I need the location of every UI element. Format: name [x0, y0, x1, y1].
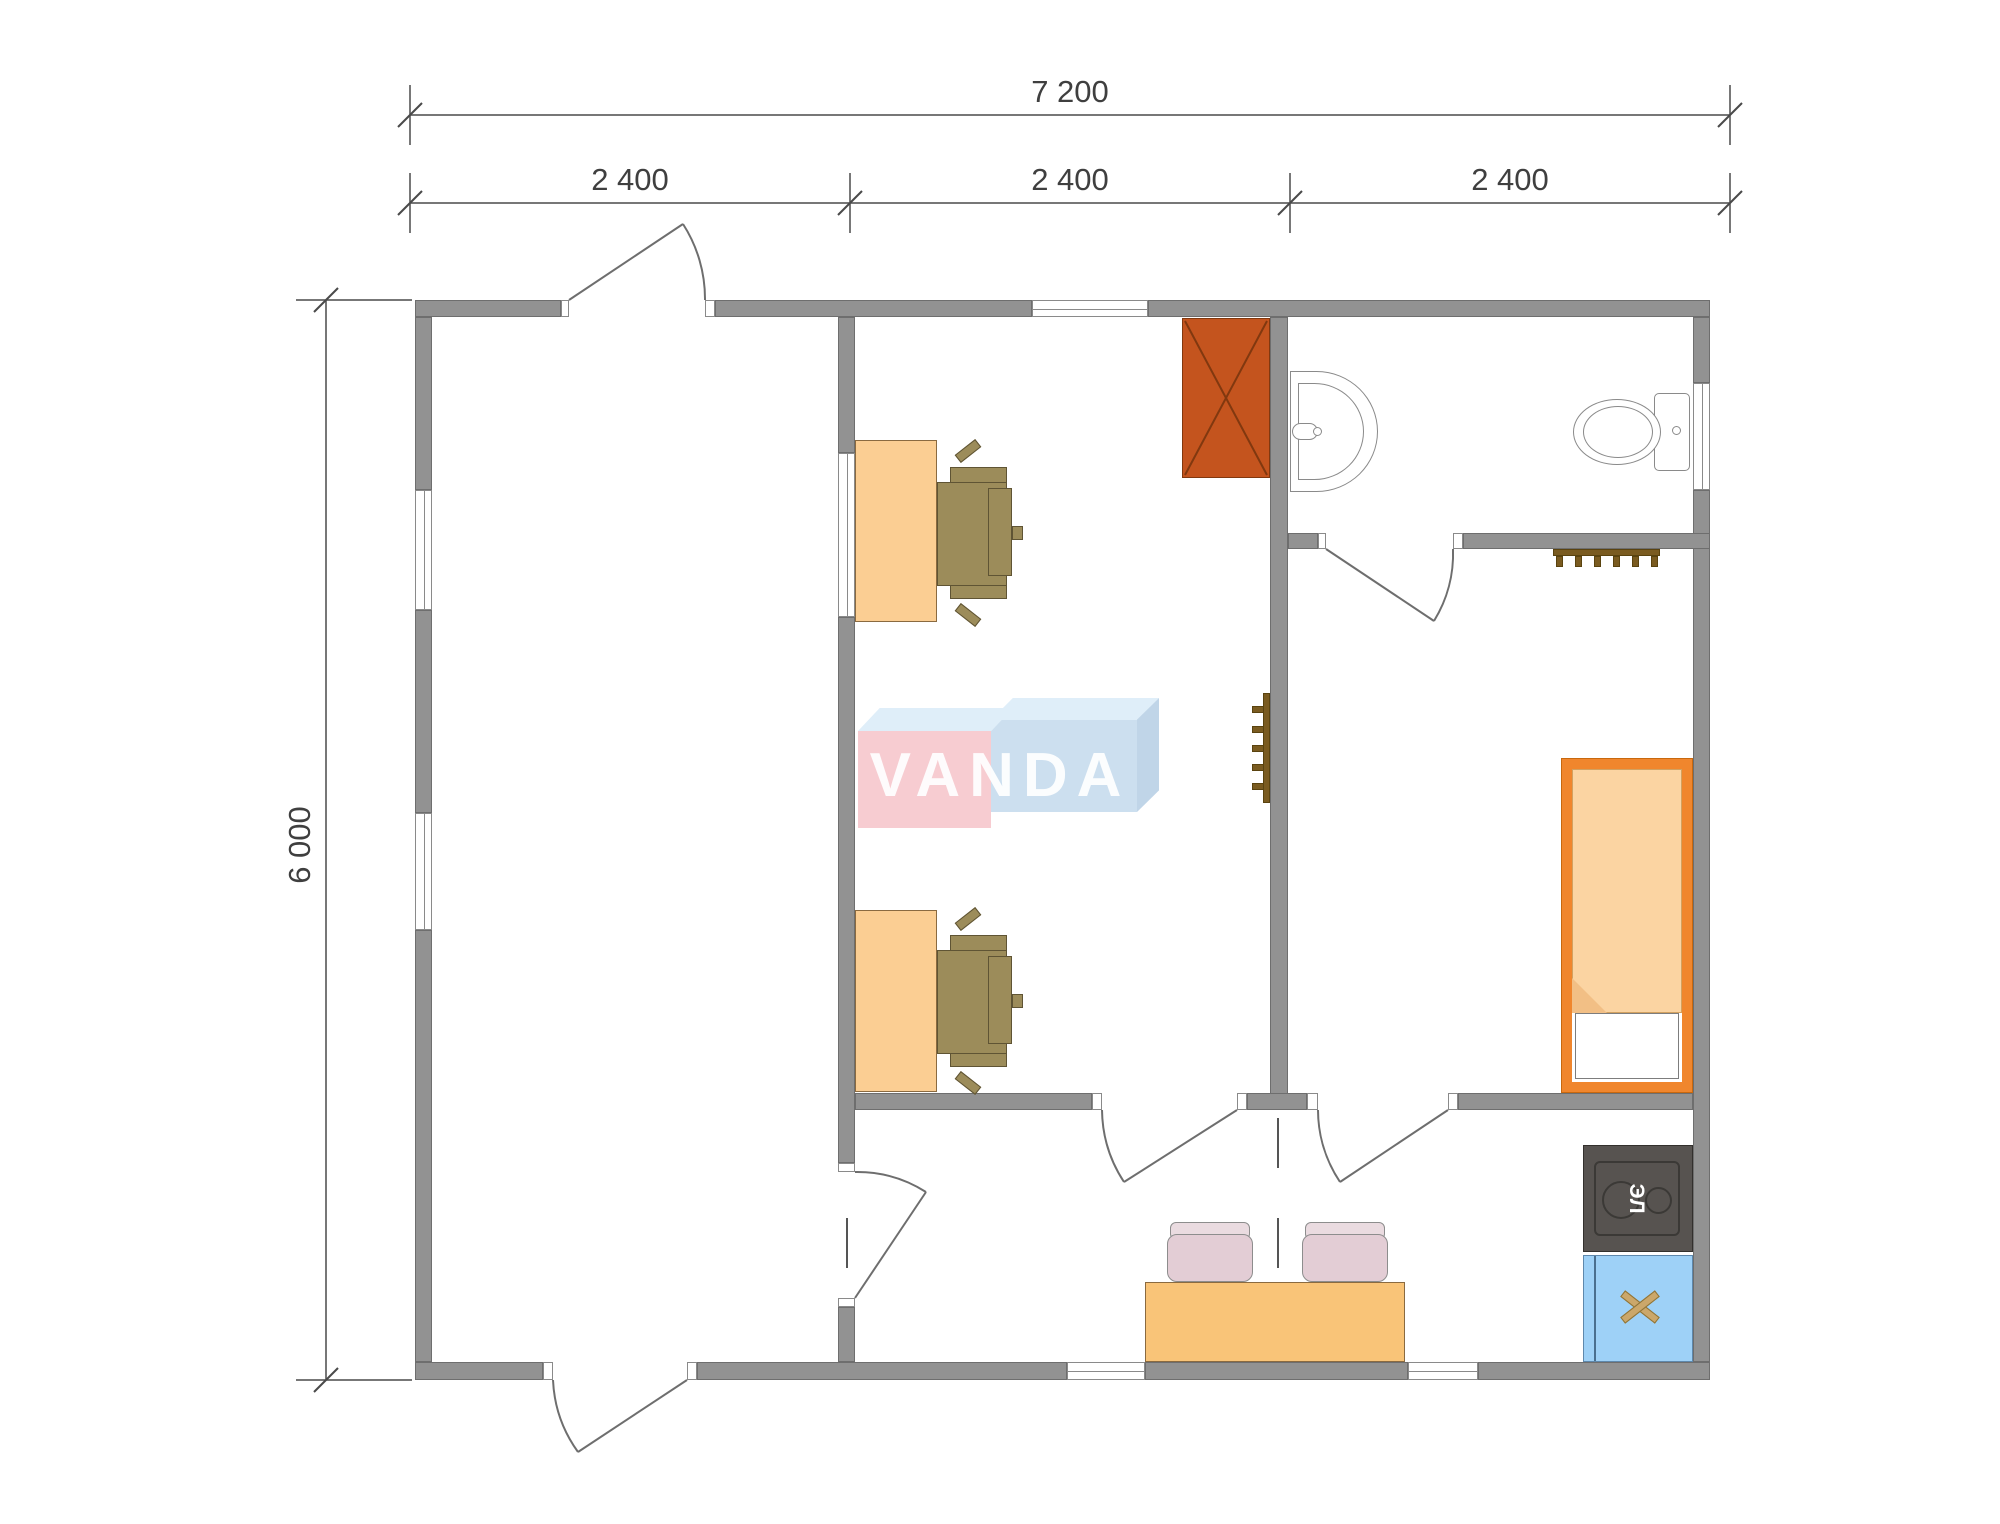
wall-left-lower: [415, 930, 432, 1362]
door-jamb: [1237, 1093, 1247, 1110]
chair-stub: [955, 907, 982, 931]
radiator-fin: [1252, 745, 1264, 752]
stove-label: ЭЛ: [1623, 1177, 1649, 1221]
radiator-fin: [1252, 726, 1264, 733]
wall-hall-left: [855, 1093, 1092, 1110]
chair-back: [988, 488, 1012, 576]
chair-armrest: [950, 467, 1007, 483]
wall-top-left: [415, 300, 561, 317]
window-icon: [1067, 1362, 1145, 1380]
window-icon: [1032, 300, 1148, 317]
dimension-segment-3: 2 400: [1410, 160, 1610, 200]
wall-interior-b: [1270, 317, 1288, 1110]
window-icon: [415, 813, 432, 930]
office-desk-icon: [855, 440, 937, 622]
faucet-knob: [1313, 427, 1322, 436]
door-jamb: [838, 1163, 855, 1172]
radiator-fin: [1252, 783, 1264, 790]
window-icon: [838, 453, 855, 617]
dimension-segment-2: 2 400: [970, 160, 1170, 200]
radiator-fin: [1575, 556, 1582, 567]
radiator-fin: [1252, 706, 1264, 713]
door-jamb: [1307, 1093, 1318, 1110]
wall-bathroom-bottom-left: [1288, 533, 1318, 549]
wall-interior-a-lower: [838, 1307, 855, 1362]
chair-back: [988, 956, 1012, 1044]
door-jamb: [1453, 533, 1463, 549]
pillow: [1575, 1013, 1679, 1079]
wall-bottom-right: [1478, 1362, 1710, 1380]
window-icon: [1693, 383, 1710, 490]
dining-chair-seat: [1167, 1234, 1253, 1282]
radiator-spine: [1263, 693, 1270, 803]
floor-plan-page: { "watermark": { "brand": "VANDA" }, "di…: [0, 0, 2000, 1524]
toilet-button: [1672, 426, 1681, 435]
door-jamb: [1318, 533, 1326, 549]
chair-stub: [955, 603, 982, 627]
window-icon: [415, 490, 432, 610]
radiator-fin: [1651, 556, 1658, 567]
chair-knob: [1012, 994, 1023, 1008]
door-jamb: [543, 1362, 553, 1380]
wall-bottom-middle-left: [697, 1362, 1067, 1380]
chair-knob: [1012, 526, 1023, 540]
door-jamb: [1448, 1093, 1458, 1110]
wall-right-upper: [1693, 317, 1710, 383]
radiator-fin: [1556, 556, 1563, 567]
logo-text: VANDA: [860, 740, 1140, 810]
radiator-fin: [1632, 556, 1639, 567]
door-jamb: [838, 1298, 855, 1307]
dimension-segment-1: 2 400: [530, 160, 730, 200]
radiator-spine: [1553, 549, 1660, 556]
radiator-fin: [1594, 556, 1601, 567]
wall-bathroom-bottom-right: [1463, 533, 1710, 549]
toilet-rim: [1583, 406, 1653, 458]
door-jamb: [1092, 1093, 1102, 1110]
logo-blue-top-face: [991, 698, 1159, 720]
stove-burner-small: [1645, 1187, 1672, 1214]
wall-interior-a-middle: [838, 617, 855, 1163]
radiator-fin: [1252, 764, 1264, 771]
floor-plan-canvas: ЭЛ VANDA: [0, 0, 2000, 1524]
wall-bottom-left: [415, 1362, 543, 1380]
door-jamb: [687, 1362, 697, 1380]
wall-top-right: [1148, 300, 1710, 317]
wall-left-middle: [415, 610, 432, 813]
wall-bottom-middle: [1145, 1362, 1408, 1380]
wall-hall-right: [1458, 1093, 1693, 1110]
wall-right-lower: [1693, 490, 1710, 1362]
wall-hall-middle: [1247, 1093, 1307, 1110]
wardrobe-icon: [1182, 318, 1270, 478]
dining-chair-seat: [1302, 1234, 1388, 1282]
door-jamb: [561, 300, 569, 317]
wall-left-upper: [415, 317, 432, 490]
window-icon: [1408, 1362, 1478, 1380]
dining-table-icon: [1145, 1282, 1405, 1362]
blanket: [1572, 769, 1682, 1013]
chair-armrest: [950, 935, 1007, 951]
sink-cabinet-line: [1594, 1256, 1596, 1361]
chair-stub: [955, 439, 982, 463]
wall-interior-a-upper: [838, 317, 855, 453]
door-jamb: [705, 300, 715, 317]
wall-top-middle: [715, 300, 1032, 317]
radiator-fin: [1613, 556, 1620, 567]
logo-pink-top-face: [858, 708, 1013, 731]
dimension-total-width: 7 200: [970, 72, 1170, 112]
dimension-total-height: 6 000: [270, 805, 330, 885]
office-desk-icon: [855, 910, 937, 1092]
chair-stub: [955, 1071, 982, 1095]
